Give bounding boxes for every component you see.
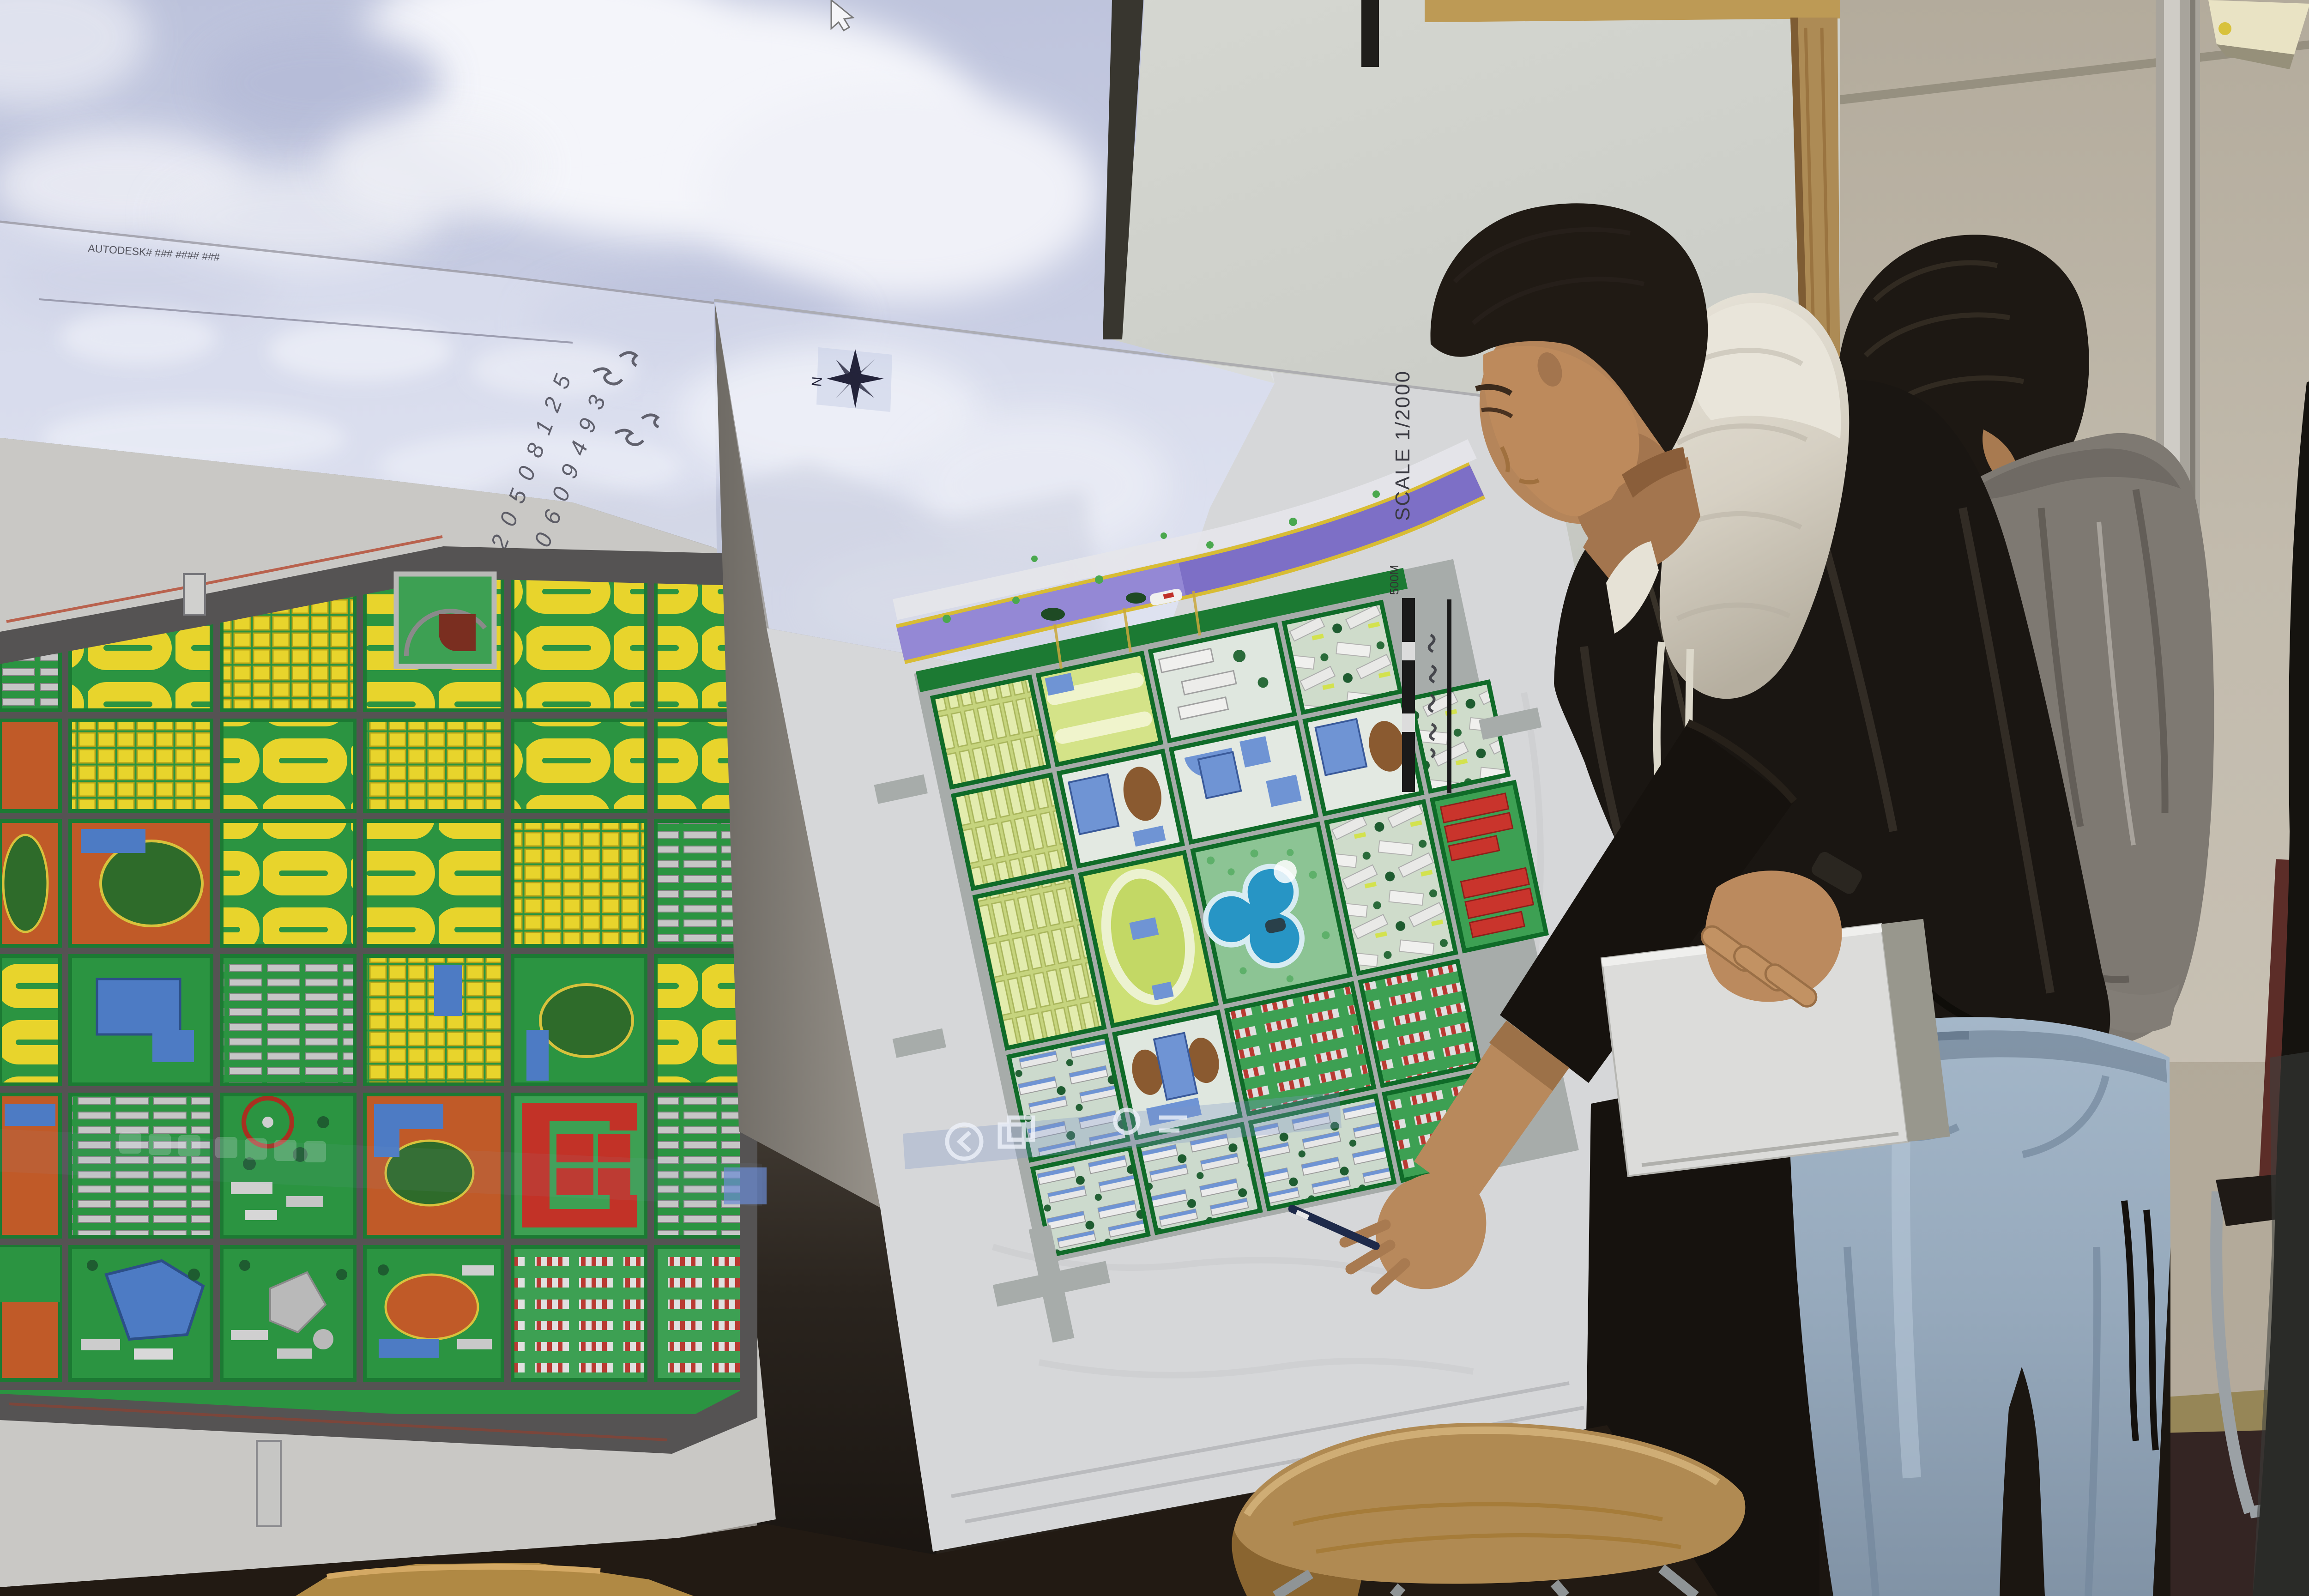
svg-text:N: N [809,376,825,387]
svg-text:SCALE 1/2000: SCALE 1/2000 [1391,370,1414,521]
svg-text:500M: 500M [1387,565,1401,595]
